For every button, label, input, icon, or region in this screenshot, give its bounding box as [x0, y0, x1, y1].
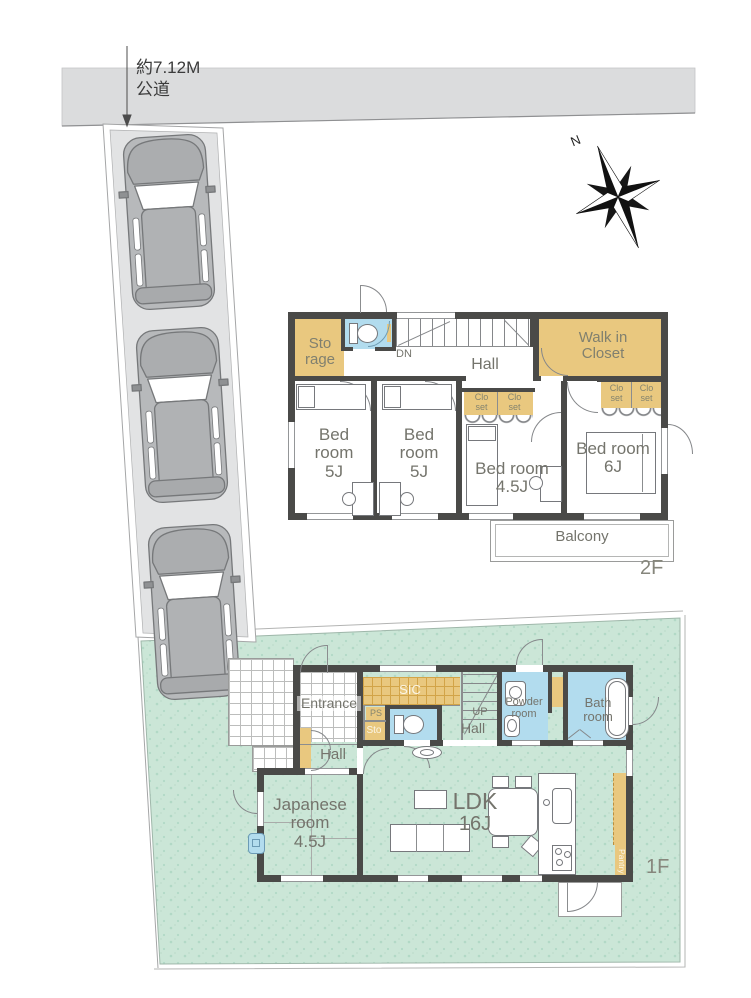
- wall: [456, 388, 535, 392]
- wall: [456, 381, 462, 513]
- chair: [492, 836, 509, 848]
- closet-curtain: [601, 408, 661, 417]
- staircase-2f: [396, 319, 530, 346]
- wall: [293, 665, 633, 672]
- bath-room-label: Bathroom: [574, 696, 622, 724]
- door-opening: [443, 740, 497, 746]
- bedroom-label: Bed room4.5J: [466, 460, 558, 497]
- window: [512, 740, 540, 746]
- window: [520, 875, 542, 882]
- closet-curtain: [464, 415, 533, 424]
- wall: [437, 707, 442, 742]
- hall-stairs-label: Hall: [450, 721, 496, 736]
- floor-plan-page: 約7.12M公道 N: [0, 0, 751, 998]
- closet-label: Closet: [602, 384, 631, 403]
- window: [281, 875, 323, 882]
- bedroom-label: Bed room6J: [568, 440, 658, 477]
- walk-in-closet-label: Walk inCloset: [563, 330, 643, 362]
- window: [380, 665, 436, 672]
- sto-label: Sto: [363, 726, 385, 737]
- wall: [533, 376, 541, 381]
- chair: [492, 776, 509, 788]
- wall: [392, 319, 396, 347]
- door-opening: [357, 748, 363, 774]
- chair: [515, 776, 532, 788]
- porch: [228, 658, 294, 746]
- closet-label: Closet: [466, 393, 497, 412]
- door-opening: [516, 665, 543, 672]
- road-label: 約7.12M公道: [136, 57, 200, 101]
- window: [469, 513, 513, 520]
- cabinet: [552, 677, 563, 707]
- ps-label: PS: [367, 709, 385, 719]
- powder-room-label: Powderroom: [499, 697, 549, 721]
- ldk-label: LDK16J: [440, 789, 510, 835]
- wall: [563, 665, 568, 742]
- chair: [400, 492, 414, 506]
- floor2-label: 2F: [640, 558, 663, 580]
- wall: [375, 347, 396, 351]
- wall: [293, 665, 300, 775]
- window: [397, 312, 455, 319]
- pantry-label: Pantry: [617, 846, 626, 876]
- wall: [661, 312, 668, 520]
- window: [288, 422, 295, 468]
- entrance-label: Entrance: [297, 696, 361, 711]
- pillow: [384, 386, 401, 408]
- pillow: [298, 386, 315, 408]
- car-icon: [129, 326, 236, 504]
- window: [584, 513, 640, 520]
- wall: [385, 705, 442, 709]
- pillow: [468, 426, 496, 441]
- wall: [288, 312, 295, 520]
- toilet-icon: [403, 715, 424, 734]
- window: [626, 750, 633, 776]
- bedroom-label: Bedroom5J: [388, 426, 450, 481]
- kitchen-sink: [552, 788, 572, 824]
- wall: [597, 378, 661, 382]
- closet-label: Closet: [632, 384, 661, 403]
- window: [462, 875, 502, 882]
- japanese-room-label: Japaneseroom4.5J: [264, 796, 356, 851]
- compass-icon: [553, 128, 683, 266]
- car-icon: [116, 133, 223, 311]
- wall: [295, 376, 466, 381]
- up-label: UP: [468, 707, 492, 719]
- wall: [533, 319, 539, 376]
- window: [661, 428, 668, 474]
- floor1-label: 1F: [646, 857, 669, 879]
- wall: [288, 312, 668, 319]
- hall-entry-label: Hall: [310, 747, 356, 763]
- hall-label-2f: Hall: [455, 356, 515, 373]
- dn-label: DN: [396, 349, 412, 361]
- window: [398, 875, 428, 882]
- window: [573, 740, 603, 746]
- chair: [342, 492, 356, 506]
- window: [307, 513, 353, 520]
- wall: [385, 707, 390, 742]
- storage-label: Storage: [296, 336, 344, 368]
- bedroom-label: Bedroom5J: [303, 426, 365, 481]
- window: [257, 792, 264, 826]
- desk: [379, 482, 401, 516]
- closet-label: Closet: [499, 393, 530, 412]
- sic-label: SIC: [380, 683, 440, 697]
- balcony-label: Balcony: [517, 529, 647, 545]
- toilet-icon: [357, 324, 378, 343]
